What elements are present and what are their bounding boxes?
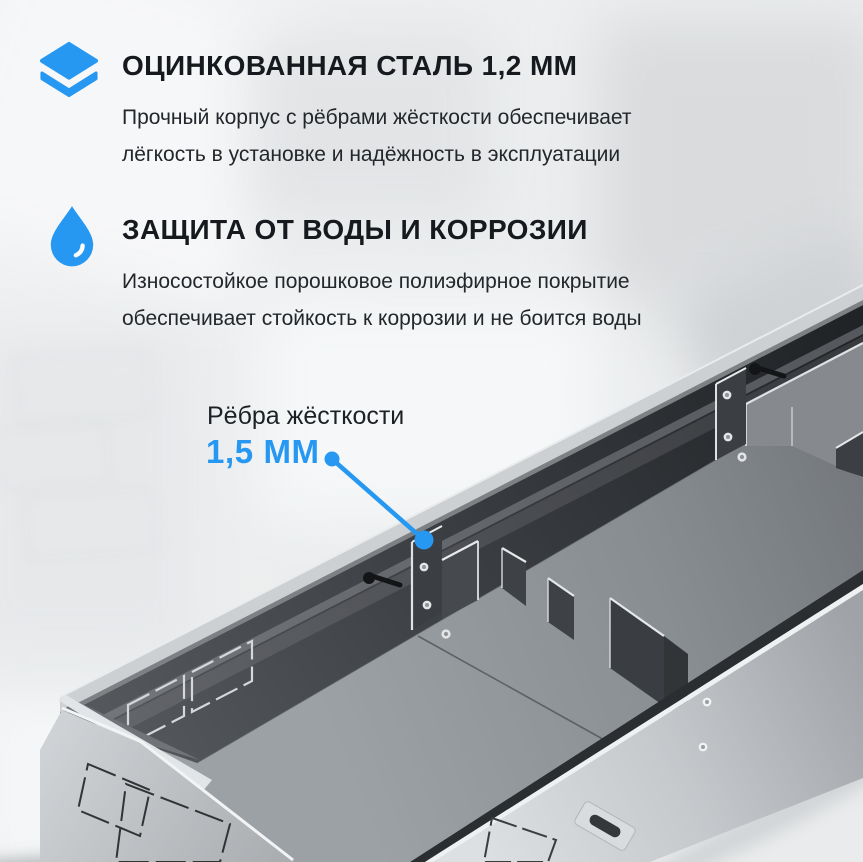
feature-title-protection: ЗАЩИТА ОТ ВОДЫ И КОРРОЗИИ (122, 214, 588, 246)
feature-desc-line: Прочный корпус с рёбрами жёсткости обесп… (122, 99, 632, 136)
feature-desc-steel: Прочный корпус с рёбрами жёсткости обесп… (122, 99, 632, 173)
drop-icon (45, 202, 99, 268)
leader-end-dot (415, 531, 434, 550)
stiffening-rib-right (716, 368, 746, 460)
feature-desc-line: лёгкость в установке и надёжность в эксп… (122, 136, 632, 173)
fastener-pin-head (749, 363, 761, 375)
feature-title-steel: ОЦИНКОВАННАЯ СТАЛЬ 1,2 ММ (122, 50, 577, 82)
feature-desc-line: Износостойкое порошковое полиэфирное пок… (122, 263, 642, 300)
callout-label: Рёбра жёсткости (207, 402, 404, 431)
feature-desc-line: обеспечивает стойкость к коррозии и не б… (122, 300, 642, 337)
leader-start-dot (325, 452, 340, 467)
feature-desc-protection: Износостойкое порошковое полиэфирное пок… (122, 263, 642, 337)
layers-icon (38, 40, 100, 100)
fastener-pin-head (363, 572, 375, 584)
product-infographic: ОЦИНКОВАННАЯ СТАЛЬ 1,2 ММ Прочный корпус… (0, 0, 863, 862)
callout-value: 1,5 ММ (206, 433, 320, 471)
